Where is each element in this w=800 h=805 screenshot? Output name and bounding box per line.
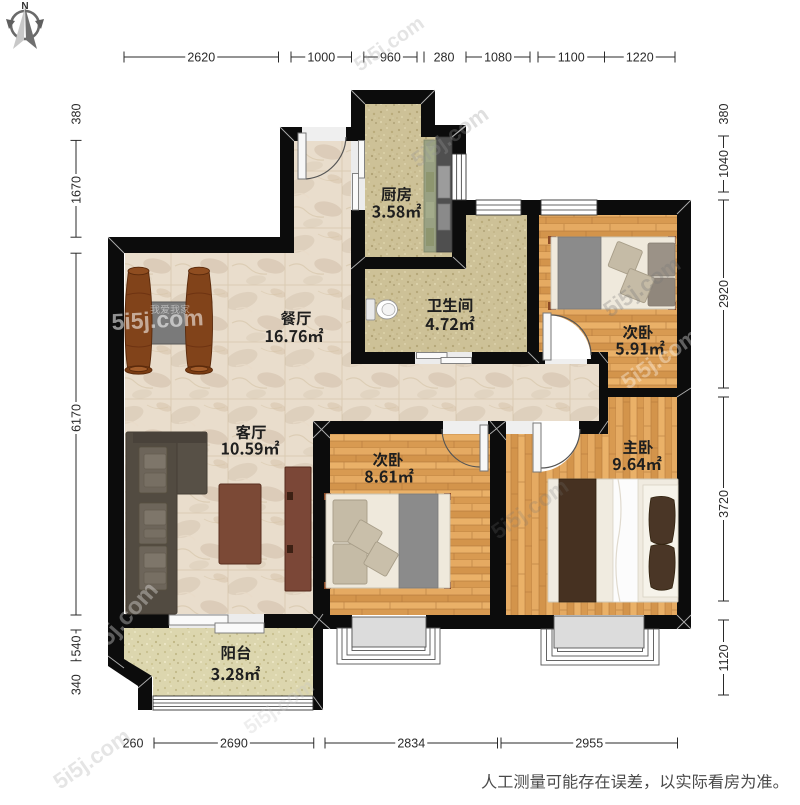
svg-text:5i5j.com: 5i5j.com — [111, 304, 204, 335]
svg-text:3720: 3720 — [717, 490, 731, 518]
svg-text:2690: 2690 — [220, 736, 248, 750]
svg-text:380: 380 — [69, 104, 83, 125]
svg-text:380: 380 — [717, 104, 731, 125]
svg-text:2955: 2955 — [575, 736, 603, 750]
svg-text:6170: 6170 — [69, 404, 83, 432]
svg-text:1000: 1000 — [307, 50, 335, 64]
svg-text:2920: 2920 — [717, 280, 731, 308]
svg-text:280: 280 — [434, 50, 455, 64]
svg-text:1080: 1080 — [484, 50, 512, 64]
svg-text:N: N — [21, 1, 28, 12]
svg-text:5i5j.com: 5i5j.com — [49, 723, 135, 794]
svg-text:340: 340 — [69, 674, 83, 695]
svg-text:1220: 1220 — [626, 50, 654, 64]
svg-text:5i5j.com: 5i5j.com — [350, 12, 428, 76]
svg-text:1100: 1100 — [558, 50, 585, 64]
svg-text:2834: 2834 — [397, 736, 425, 750]
svg-text:1670: 1670 — [69, 176, 83, 204]
svg-text:1120: 1120 — [717, 645, 731, 672]
svg-text:1040: 1040 — [717, 150, 731, 178]
svg-text:2620: 2620 — [187, 50, 215, 64]
